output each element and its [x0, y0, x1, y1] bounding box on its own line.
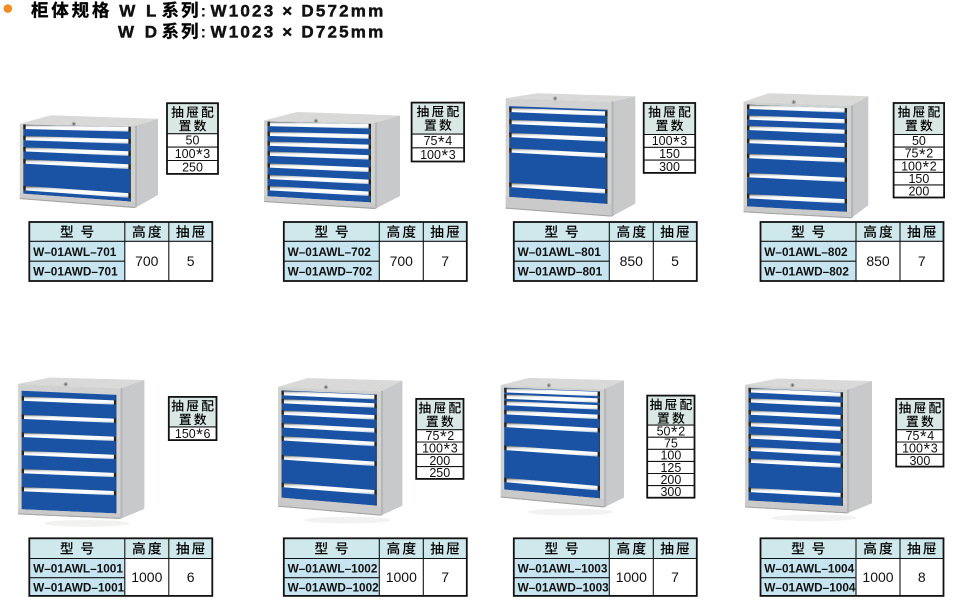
svg-text:1000: 1000 [862, 569, 893, 585]
svg-text:W D: W D [118, 23, 160, 42]
svg-text:W–01AWD–1003: W–01AWD–1003 [518, 580, 610, 594]
svg-text:W L: W L [119, 1, 159, 20]
svg-text:1000: 1000 [131, 569, 162, 585]
svg-text:150: 150 [175, 427, 196, 441]
svg-text:W–01AWL–801: W–01AWL–801 [518, 245, 602, 259]
svg-text:75: 75 [424, 134, 438, 148]
svg-text:1000: 1000 [386, 569, 417, 585]
svg-text:3: 3 [931, 441, 938, 455]
svg-text:300: 300 [909, 454, 930, 468]
svg-text::: : [201, 23, 207, 42]
svg-text:100: 100 [175, 147, 196, 161]
svg-text:6: 6 [204, 427, 211, 441]
svg-text:W–01AWL–701: W–01AWL–701 [33, 245, 117, 259]
svg-text:W–01AWL–1001: W–01AWL–1001 [33, 562, 123, 576]
svg-text:100: 100 [420, 148, 441, 162]
svg-text:W–01AWD–801: W–01AWD–801 [518, 265, 603, 279]
svg-text:W1023 × D725mm: W1023 × D725mm [211, 23, 386, 42]
svg-text:3: 3 [203, 147, 210, 161]
svg-text:W–01AWL–702: W–01AWL–702 [288, 245, 372, 259]
svg-text:5: 5 [671, 253, 679, 269]
svg-text:700: 700 [390, 253, 414, 269]
svg-text:3: 3 [680, 134, 687, 148]
svg-text:W–01AWD–701: W–01AWD–701 [33, 265, 118, 279]
svg-text:W–01AWD–1004: W–01AWD–1004 [764, 580, 856, 594]
svg-text:5: 5 [187, 253, 195, 269]
svg-text:W1023 × D572mm: W1023 × D572mm [211, 1, 386, 20]
svg-text:W–01AWD–1002: W–01AWD–1002 [288, 580, 380, 594]
svg-text:850: 850 [620, 253, 644, 269]
svg-text:3: 3 [451, 441, 458, 455]
svg-text:250: 250 [182, 161, 203, 175]
svg-text:300: 300 [659, 160, 680, 174]
svg-text:850: 850 [866, 253, 890, 269]
svg-text:6: 6 [187, 569, 195, 585]
svg-text:7: 7 [441, 253, 449, 269]
svg-text:2: 2 [930, 159, 937, 173]
svg-text:2: 2 [678, 425, 685, 439]
svg-text:W–01AWD–1001: W–01AWD–1001 [33, 580, 125, 594]
svg-text:700: 700 [135, 253, 159, 269]
svg-text:W–01AWD–702: W–01AWD–702 [288, 265, 373, 279]
svg-text:W–01AWL–1004: W–01AWL–1004 [764, 562, 854, 576]
svg-text:7: 7 [671, 569, 679, 585]
svg-text:W–01AWL–1002: W–01AWL–1002 [288, 562, 378, 576]
svg-text:7: 7 [918, 253, 926, 269]
svg-text:7: 7 [441, 569, 449, 585]
svg-text:200: 200 [908, 185, 929, 199]
svg-text:8: 8 [918, 569, 926, 585]
svg-text:W–01AWD–802: W–01AWD–802 [764, 265, 849, 279]
svg-text:1000: 1000 [616, 569, 647, 585]
svg-text::: : [201, 1, 207, 20]
svg-text:W–01AWL–802: W–01AWL–802 [764, 245, 848, 259]
svg-text:3: 3 [449, 148, 456, 162]
svg-text:*: * [196, 425, 203, 444]
svg-text:W–01AWL–1003: W–01AWL–1003 [518, 562, 608, 576]
